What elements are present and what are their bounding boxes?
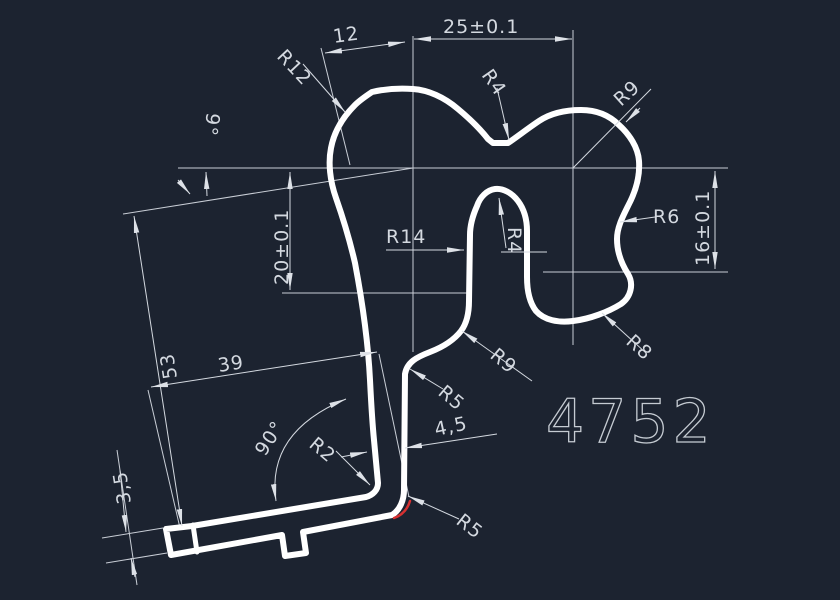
dim-25-label: 25±0.1 [443,16,519,38]
extension-tick-3-5-bottom [106,553,167,563]
leader-r2 [336,451,370,485]
dim-53-label: 53 [156,351,182,380]
dim-12-label: 12 [332,23,361,48]
radius-r6-label: R6 [653,206,680,228]
radius-r12-label: R12 [272,45,316,90]
radius-r5-bottom-label: R5 [452,510,487,544]
dim-3-5-label: 3,5 [109,469,136,505]
extension-tick-3-5-top [102,528,163,538]
dim-16-label: 16±0.1 [692,190,714,266]
part-number: 4752 [546,387,715,457]
radius-r4-slot-label: R4 [503,227,525,254]
leader-r9-top-arrow [626,108,640,122]
cad-drawing: 12 25±0.1 R12 R4 R9 9° 20±0.1 R14 R4 R6 … [0,0,840,600]
dim-4-5-label: 4,5 [432,412,469,440]
radius-r9-top-label: R9 [610,76,645,111]
angle-9-arrow-lower [178,180,190,194]
dim-20-label: 20±0.1 [271,209,293,285]
dim-4-5-arrow-left [341,452,367,457]
dim-39-label: 39 [216,351,245,377]
dim-39-line [151,352,377,387]
angle-9-reference-line [123,168,413,214]
radius-r2-label: R2 [305,433,340,467]
angle-9-arrow-upper [206,172,207,196]
profile-outline [166,89,639,556]
cad-drawing-canvas[interactable]: 12 25±0.1 R12 R4 R9 9° 20±0.1 R14 R4 R6 … [0,0,840,600]
radius-r9-mid-label: R9 [486,344,521,378]
leader-r5-mid [410,369,443,389]
extension-line-12-left [321,48,350,165]
radius-r4-top-label: R4 [477,65,511,100]
angle-90-label: 90° [251,417,289,460]
radius-r14-label: R14 [386,226,426,248]
leader-r5-bottom [408,496,459,519]
angle-9-label: 9° [198,111,223,138]
